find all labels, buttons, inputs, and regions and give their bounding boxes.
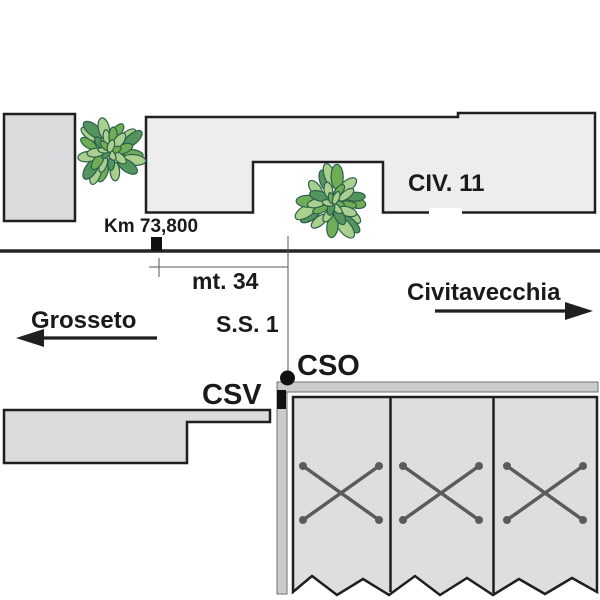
x-mark-end-dot	[375, 516, 383, 524]
x-mark-end-dot	[475, 462, 483, 470]
x-mark-end-dot	[503, 462, 511, 470]
x-mark-end-dot	[299, 516, 307, 524]
building-civ-11-entrance-gap	[429, 208, 462, 217]
building-lower-left	[4, 410, 270, 463]
wall-band-left	[277, 392, 287, 594]
building-civ-11	[146, 113, 595, 213]
site-plan: Km 73,800 CIV. 11 mt. 34 Grosseto S.S. 1…	[0, 0, 600, 600]
direction-east-label: Civitavecchia	[407, 281, 560, 305]
civic-number-label: CIV. 11	[408, 172, 485, 196]
x-mark-end-dot	[579, 462, 587, 470]
direction-west-label: Grosseto	[31, 309, 136, 333]
cso-label: CSO	[297, 352, 360, 381]
cso-point-dot	[280, 371, 295, 386]
distance-label: mt. 34	[192, 270, 258, 293]
x-mark-end-dot	[503, 516, 511, 524]
tree-icon	[292, 162, 366, 241]
x-mark-end-dot	[579, 516, 587, 524]
km-marker-label: Km 73,800	[104, 217, 198, 236]
csv-gate-marker	[277, 390, 286, 409]
x-mark-end-dot	[399, 462, 407, 470]
km-marker-tick	[151, 237, 162, 251]
x-mark-end-dot	[299, 462, 307, 470]
x-mark-end-dot	[399, 516, 407, 524]
road-name-label: S.S. 1	[216, 313, 279, 336]
csv-label: CSV	[202, 381, 262, 410]
building-upper-left	[4, 114, 75, 221]
wall-band-top	[277, 382, 598, 392]
tree-icon	[77, 117, 146, 186]
arrow-east-head-icon	[565, 302, 593, 320]
x-mark-end-dot	[475, 516, 483, 524]
x-mark-end-dot	[375, 462, 383, 470]
